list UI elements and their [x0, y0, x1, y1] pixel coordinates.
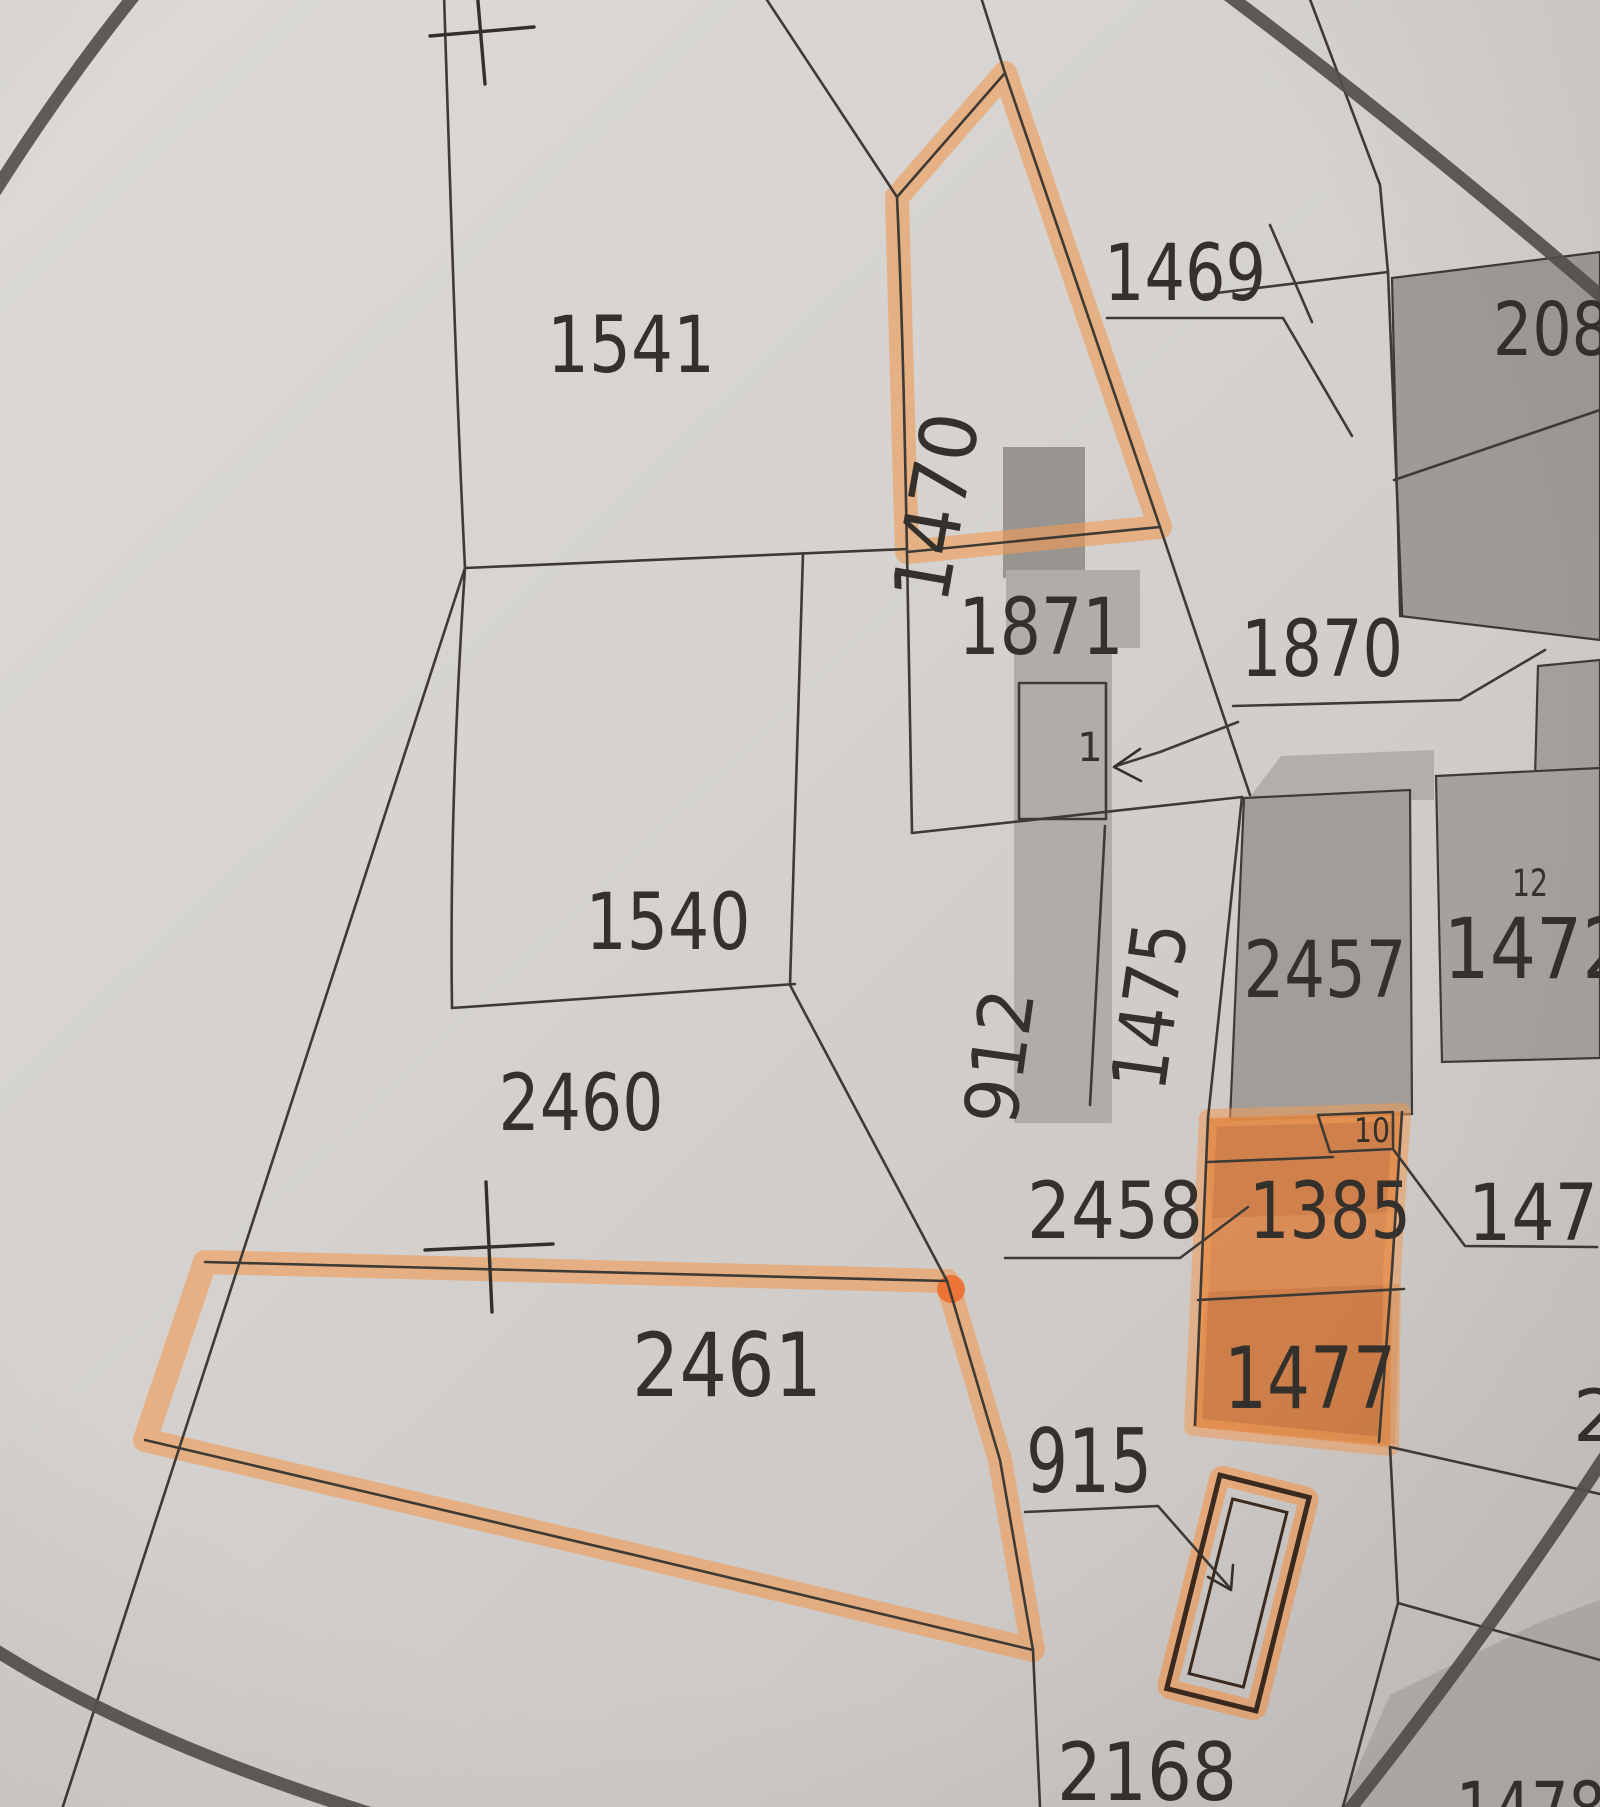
cadastral-map-photo: 1541146914702081871187011540912147524571…	[0, 0, 1600, 1807]
map-canvas: 1541146914702081871187011540912147524571…	[0, 0, 1600, 1807]
photo-vignette	[0, 0, 1600, 1807]
